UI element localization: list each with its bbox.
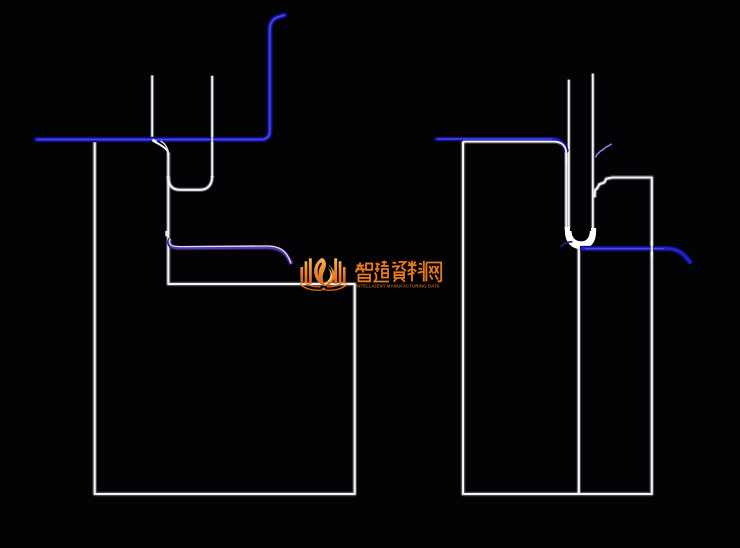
svg-text:INTELLIGENT MANUFACTURING DATA: INTELLIGENT MANUFACTURING DATA bbox=[356, 283, 440, 288]
